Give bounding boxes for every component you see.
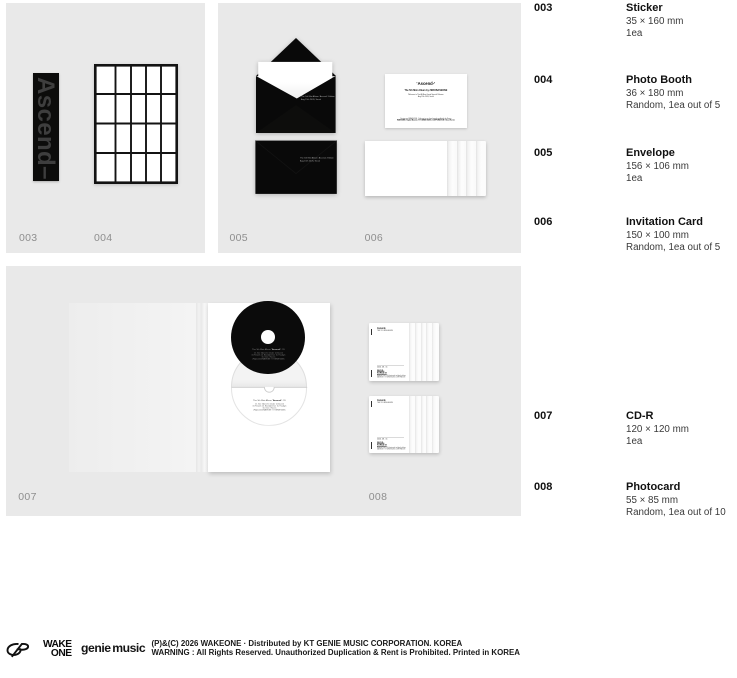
svg-text:Aug 15th 2026, Seoul: Aug 15th 2026, Seoul bbox=[301, 98, 322, 101]
svg-text:The 5th Mini Album 'Ascend-' E: The 5th Mini Album 'Ascend-' Edition bbox=[301, 95, 336, 98]
svg-text:Aug 15th 2026, Seoul: Aug 15th 2026, Seoul bbox=[300, 160, 321, 163]
svg-text:The 5th Mini Album 'Ascend-' E: The 5th Mini Album 'Ascend-' Edition bbox=[300, 157, 335, 160]
